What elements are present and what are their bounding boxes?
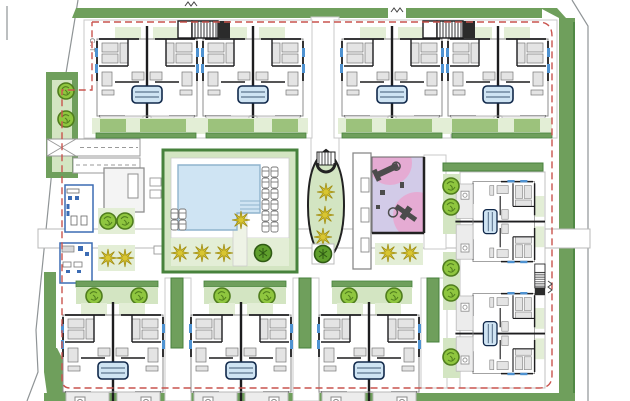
tree-icon	[86, 288, 102, 304]
duplex-unit	[455, 292, 545, 375]
bottom-residential-blocks	[61, 281, 421, 401]
palm-icon	[215, 244, 233, 262]
tree-icon	[443, 178, 459, 194]
tree-icon	[341, 288, 357, 304]
site-plan: C.T	[0, 0, 630, 401]
stair-core-icon	[535, 264, 545, 295]
tree-icon	[58, 111, 74, 127]
palm-icon	[314, 228, 332, 246]
palm-icon	[99, 249, 117, 267]
duplex-unit	[317, 302, 421, 401]
tree-icon	[214, 288, 230, 304]
gate-marker-icon	[185, 2, 197, 6]
palm-icon	[379, 244, 397, 262]
club-room	[60, 243, 92, 283]
palm-icon	[317, 183, 335, 201]
pool-area	[163, 150, 297, 272]
top-left-residential-block	[84, 20, 312, 138]
transformer-label: C.T	[88, 38, 97, 53]
stair-core-icon	[423, 21, 475, 38]
duplex-unit	[61, 302, 165, 401]
stair-core-icon	[178, 21, 230, 38]
tree-icon	[443, 199, 459, 215]
palm-icon	[193, 244, 211, 262]
clubhouse-area	[60, 168, 165, 283]
tree-icon	[100, 213, 116, 229]
bottom-block	[317, 281, 421, 401]
palm-icon	[232, 211, 250, 229]
right-residential-block	[443, 163, 545, 388]
duplex-unit	[189, 302, 293, 401]
tree-icon	[386, 288, 402, 304]
tree-icon	[443, 260, 459, 276]
bottom-block	[189, 281, 293, 401]
palm-icon	[316, 206, 334, 224]
tree-icon	[259, 288, 275, 304]
palm-icon	[171, 244, 189, 262]
palm-icon	[116, 249, 134, 267]
tree-icon	[131, 288, 147, 304]
tree-icon	[58, 83, 74, 99]
bush-icon	[255, 245, 272, 262]
top-right-residential-block	[334, 20, 557, 138]
bush-icon	[315, 246, 332, 263]
tree-icon	[443, 349, 459, 365]
palm-icon	[401, 244, 419, 262]
club-room	[65, 185, 93, 232]
tree-icon	[443, 285, 459, 301]
bottom-block	[61, 281, 165, 401]
tree-icon	[117, 213, 133, 229]
duplex-unit	[455, 180, 545, 263]
